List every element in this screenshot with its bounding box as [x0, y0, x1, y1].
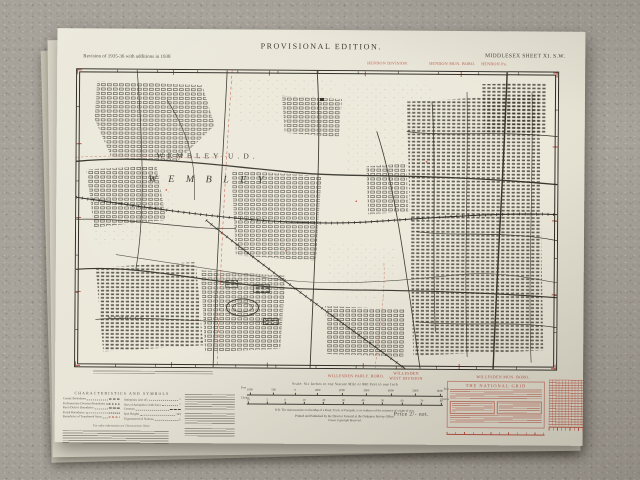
flag-symbol [320, 98, 324, 101]
parish-boundary-symbol [109, 411, 120, 413]
national-grid-title: THE NATIONAL GRID [450, 383, 542, 389]
national-grid-example-box-right [497, 401, 542, 414]
notes-fine-print-2 [185, 413, 235, 425]
scale-tick-label: 10 [247, 398, 250, 404]
scale-tick-label: 1000 [314, 389, 320, 395]
scale-tick-label: 5000 [412, 390, 418, 396]
national-grid-footnote-text [450, 415, 542, 424]
revision-note: Revision of 1935-36 with additions in 19… [83, 54, 170, 60]
scale-tick-label: 4000 [388, 389, 394, 395]
notes-fine-print-1 [185, 394, 235, 410]
town-label-small: WEMBLEY [107, 317, 144, 322]
national-grid-index-diagram [549, 380, 584, 426]
photo-of-map-on-carpet: PROVISIONAL EDITION. Revision of 1935-36… [0, 0, 640, 480]
district-label: WEMBLEY U.D. [157, 151, 259, 161]
feet-unit-label: Feet [241, 385, 246, 389]
town-label: W E M B L E Y [148, 174, 268, 186]
legend-note: For other information see Characteristic… [63, 424, 181, 429]
scale-tick-label: 30 [342, 399, 345, 405]
legend-right-column: Antiquities (site of)+ Sites of Antiquit… [124, 397, 181, 422]
scale-tick-label: 0 [285, 398, 287, 404]
legend-heading: CHARACTERISTICS AND SYMBOLS [63, 391, 181, 396]
top-margin-label-parish: HENDON Pa. [481, 61, 507, 66]
scale-tick-label: 70 [420, 399, 423, 405]
scale-tick-label: 500 [271, 389, 276, 395]
spot-height-symbol: ·123 [175, 412, 181, 417]
legend-left-column: County Boundaries Parliamentary Division… [63, 396, 120, 421]
scale-tick-label: 2000 [339, 389, 345, 395]
national-grid-scale-ruler [447, 430, 545, 436]
top-margin-label-division: HENDON DIVISION [367, 60, 407, 65]
scale-tick-label: 50 [381, 399, 384, 405]
legend-item: Trigonometrical Stations△ [124, 417, 181, 422]
map-artwork: WEMBLEY U.D. W E M B L E Y WEMBLEY [75, 69, 558, 369]
transferred-area-boundary-symbol [109, 417, 120, 418]
antiquity-site-symbol: × [179, 402, 181, 407]
national-grid-panel: THE NATIONAL GRID [447, 381, 545, 429]
marginal-fine-print [93, 370, 213, 374]
legend-panel: CHARACTERISTICS AND SYMBOLS County Bound… [63, 391, 181, 445]
legend-item: Boundaries of Transferred Areas [63, 415, 120, 420]
scale-tick-label: 3000 [363, 389, 369, 395]
example-box-text [452, 402, 493, 411]
price-label: Price 2/- net. [394, 412, 429, 418]
notes-fine-print-3 [185, 428, 235, 437]
rural-district-boundary-symbol [109, 407, 120, 409]
top-margin-label-borough: HENDON MUN. BORO. [429, 61, 475, 66]
trig-station-symbol: △ [178, 417, 180, 422]
scale-tick-label: 6000 [437, 390, 443, 396]
scale-tick-label: 10 [303, 398, 306, 404]
scale-tick-label: 80 [440, 399, 443, 405]
copyright-line: Crown Copyright Reserved. [241, 417, 449, 422]
bottom-margin-label-mun-boro: WILLESDEN MUN. BORO. [467, 374, 539, 380]
scale-tick-label: 20 [322, 399, 325, 405]
antiquity-symbol: + [179, 397, 181, 402]
scale-tick-label: 0 [294, 389, 296, 395]
national-grid-example-box-left [450, 400, 495, 413]
scale-tick-label: 1000 [247, 388, 253, 394]
scale-tick-label: 5 [266, 398, 268, 404]
survey-history-fine-print [63, 431, 169, 446]
parliamentary-boundary-symbol [109, 403, 120, 404]
county-boundary-symbol [109, 399, 120, 400]
scale-tick-label: 40 [361, 399, 364, 405]
national-grid-diagram-ticks [549, 427, 584, 431]
edition-title: PROVISIONAL EDITION. [57, 40, 585, 53]
map-frame: WEMBLEY U.D. W E M B L E Y WEMBLEY [74, 68, 559, 370]
sheet-reference: MIDDLESEX SHEET XI. S.W. [485, 53, 565, 60]
scale-tick-label: 60 [401, 399, 404, 405]
contour-symbol [170, 408, 181, 410]
example-box-text [499, 403, 540, 412]
national-grid-example-boxes [450, 400, 542, 414]
bottom-margin-label-west-division: WEST DIVISION [373, 375, 439, 380]
national-grid-explanation-text [450, 389, 542, 400]
chains-scale-ruler: 10501020304050607080 [247, 398, 443, 406]
map-sheet: PROVISIONAL EDITION. Revision of 1935-36… [55, 28, 586, 446]
